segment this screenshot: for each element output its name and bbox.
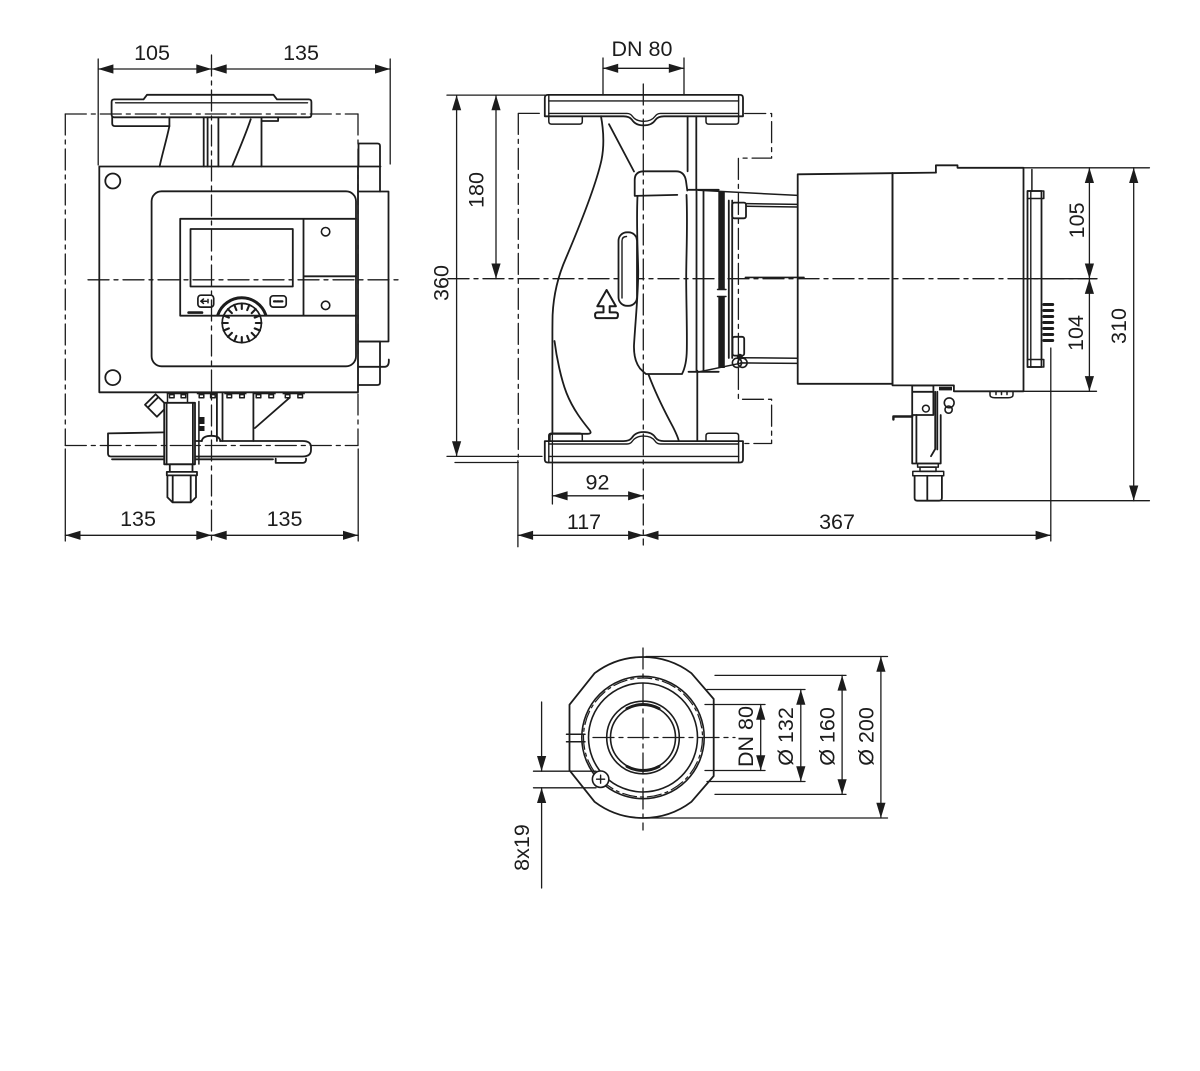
svg-text:367: 367 (819, 510, 855, 534)
svg-text:Ø 200: Ø 200 (854, 707, 878, 766)
svg-text:310: 310 (1107, 308, 1131, 344)
svg-text:Ø 160: Ø 160 (816, 707, 840, 766)
svg-text:135: 135 (267, 507, 303, 531)
svg-text:92: 92 (586, 471, 610, 495)
svg-text:8x19: 8x19 (510, 824, 534, 871)
svg-text:117: 117 (567, 510, 601, 534)
svg-text:105: 105 (134, 41, 170, 65)
svg-text:135: 135 (283, 41, 319, 65)
svg-text:180: 180 (465, 172, 489, 208)
svg-text:360: 360 (430, 265, 454, 301)
svg-text:Ø 132: Ø 132 (774, 707, 798, 766)
svg-text:104: 104 (1064, 315, 1088, 351)
svg-text:DN 80: DN 80 (734, 706, 758, 767)
svg-text:DN 80: DN 80 (612, 37, 673, 61)
svg-text:135: 135 (120, 507, 156, 531)
svg-text:105: 105 (1065, 202, 1089, 238)
